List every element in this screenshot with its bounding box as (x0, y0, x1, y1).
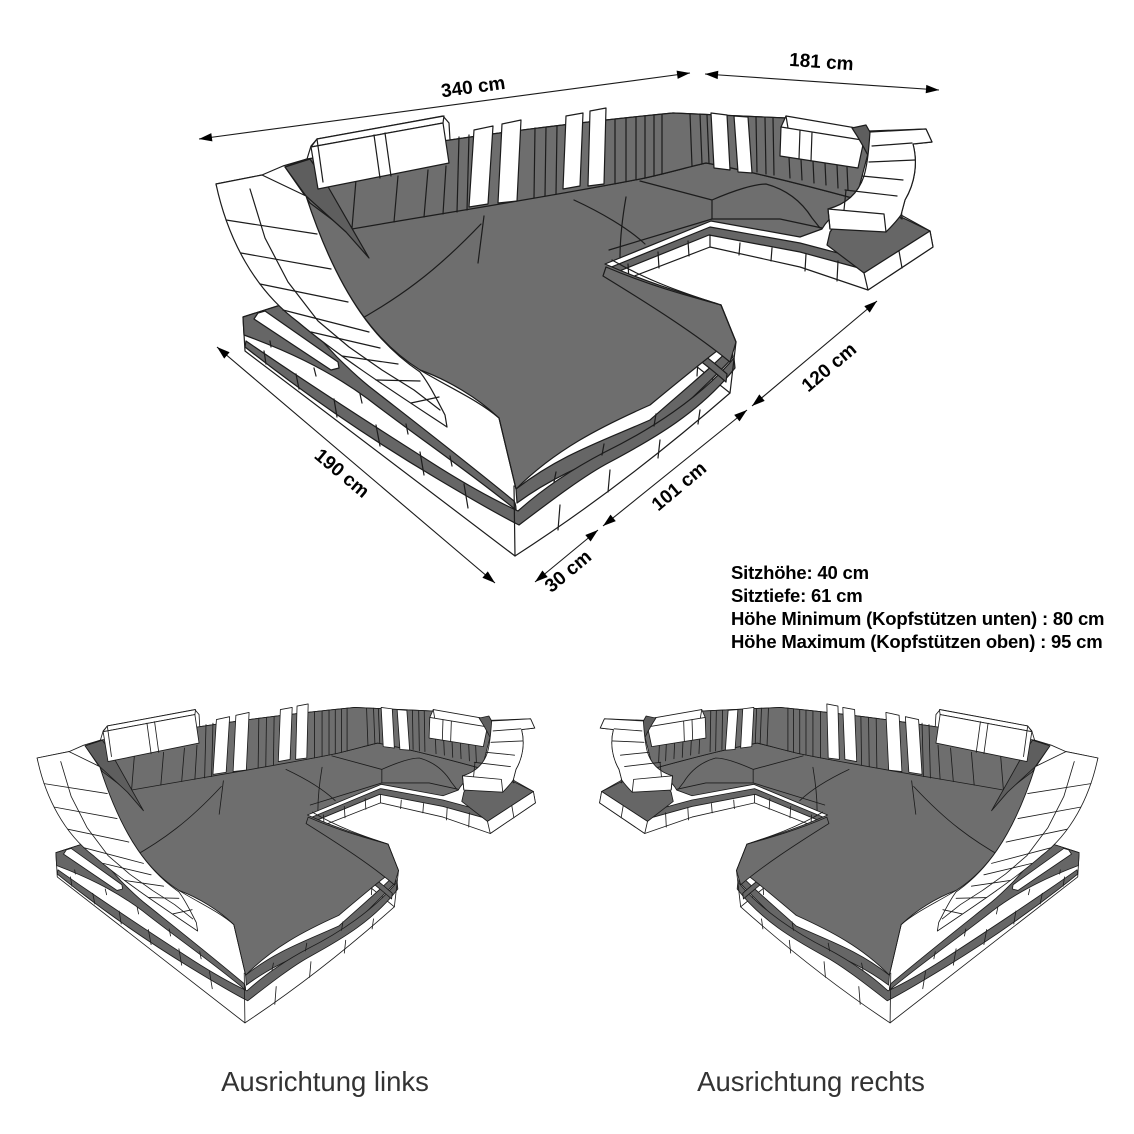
svg-text:Ausrichtung links: Ausrichtung links (221, 1066, 429, 1097)
svg-text:190 cm: 190 cm (310, 445, 373, 503)
svg-text:Sitztiefe: 61 cm: Sitztiefe: 61 cm (731, 585, 863, 606)
svg-text:340 cm: 340 cm (440, 73, 507, 102)
svg-text:101 cm: 101 cm (648, 458, 711, 516)
svg-text:Ausrichtung rechts: Ausrichtung rechts (697, 1066, 925, 1097)
svg-text:Höhe Maximum (Kopfstützen oben: Höhe Maximum (Kopfstützen oben) : 95 cm (731, 631, 1102, 652)
svg-text:120 cm: 120 cm (798, 339, 861, 397)
svg-text:Höhe Minimum (Kopfstützen unte: Höhe Minimum (Kopfstützen unten) : 80 cm (731, 608, 1104, 629)
svg-text:181 cm: 181 cm (789, 50, 855, 75)
svg-text:Sitzhöhe: 40 cm: Sitzhöhe: 40 cm (731, 562, 869, 583)
